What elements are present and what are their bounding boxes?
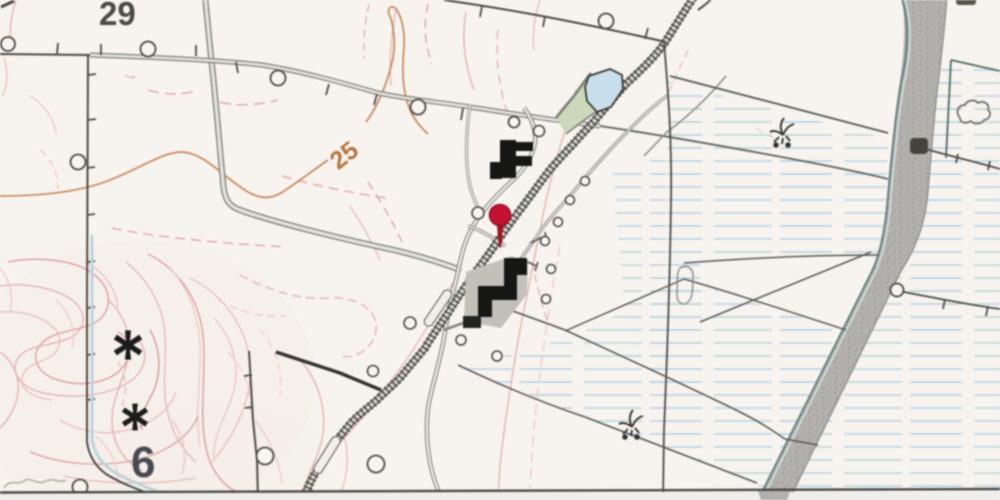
svg-text:29: 29 [99,0,136,32]
svg-text:6: 6 [131,438,155,487]
